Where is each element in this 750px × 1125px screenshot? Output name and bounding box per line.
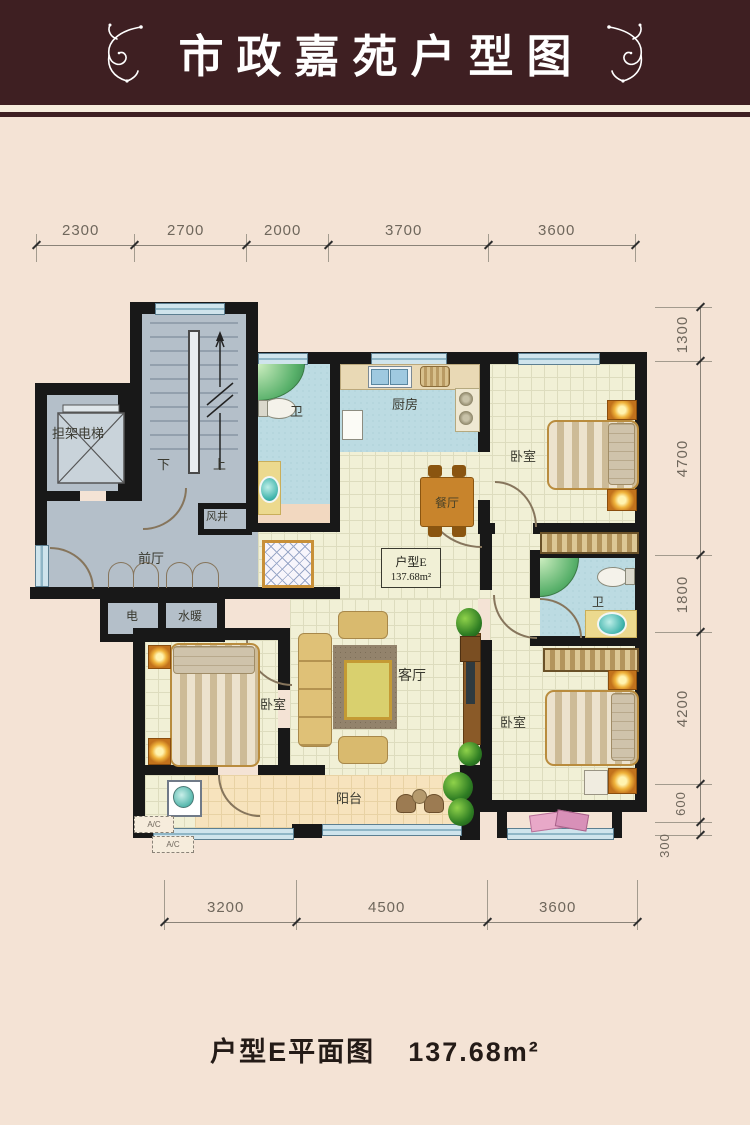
sofa (298, 633, 332, 747)
wall (35, 383, 142, 395)
room-label-plumbing: 水暖 (178, 610, 202, 622)
armchair (338, 611, 388, 639)
wall (198, 503, 204, 535)
wall (100, 595, 108, 642)
front-hall-window (35, 545, 49, 587)
flourish-right-icon (601, 21, 653, 85)
stool (584, 770, 608, 795)
ac-label: A/C (166, 840, 179, 849)
plan-caption: 户型E平面图 137.68m² (0, 1030, 750, 1069)
ac-label: A/C (147, 820, 160, 829)
bed-pillows (608, 423, 635, 485)
balcony-chair (424, 794, 444, 813)
dim-bottom-2: 4500 (368, 899, 405, 916)
bedroom-top-right-window (518, 353, 600, 365)
dim-right-4: 4200 (674, 690, 691, 727)
nightstand (607, 400, 637, 420)
burner (459, 392, 473, 406)
page: 市政嘉苑户型图 (0, 0, 750, 1125)
sink-basin (371, 369, 389, 385)
dimension-line (164, 922, 637, 923)
plant-pot (460, 636, 481, 662)
bed-pillows (611, 693, 635, 761)
room-label-electric: 电 (126, 610, 138, 622)
caption-area: 137.68m² (408, 1037, 540, 1067)
unit-name: 户型E (395, 553, 426, 570)
wall (158, 603, 166, 642)
stair-direction-arrow (205, 325, 235, 475)
wall (252, 523, 340, 532)
balcony-window-right (322, 824, 462, 836)
wardrobe (540, 532, 639, 554)
plumbing-door-arc (166, 562, 193, 588)
extension-line (655, 784, 712, 785)
ac-outdoor-unit: A/C (134, 816, 174, 833)
dim-right-1: 1300 (674, 316, 691, 353)
room-label-bedroom-bl: 卧室 (260, 698, 286, 711)
wall (497, 812, 507, 838)
toilet-tank (625, 568, 635, 585)
refrigerator (342, 410, 363, 440)
dim-top-5: 3600 (538, 222, 575, 239)
dim-top-3: 2000 (264, 222, 301, 239)
dim-bottom-1: 3200 (207, 899, 244, 916)
dining-label: 餐厅 (435, 494, 459, 511)
dim-top-4: 3700 (385, 222, 422, 239)
dim-right-3: 1800 (674, 576, 691, 613)
bed-pillows (173, 646, 255, 674)
wall (480, 640, 492, 812)
sink (597, 612, 627, 636)
room-label-bath-top: 卫 (290, 405, 303, 418)
extension-line (655, 632, 712, 633)
caption-title: 户型E平面图 (210, 1037, 375, 1067)
balcony-table (412, 789, 427, 804)
unit-area: 137.68m² (391, 572, 431, 583)
wall (198, 529, 252, 535)
unit-info-box: 户型E 137.68m² (381, 548, 441, 588)
dining-chair (428, 465, 442, 477)
dimension-line (700, 307, 701, 835)
nightstand (148, 645, 171, 669)
room-label-bedroom-tr: 卧室 (510, 450, 536, 463)
coffee-table (344, 660, 392, 720)
room-label-stairs-up: 上 (213, 458, 226, 471)
extension-line (36, 234, 37, 262)
elevator-symbol (55, 403, 127, 487)
wall (530, 550, 540, 598)
wall (217, 595, 225, 642)
extension-line (655, 555, 712, 556)
extension-line (635, 234, 636, 262)
extension-line (328, 234, 329, 262)
toilet-tank (258, 400, 268, 417)
room-label-elevator: 担架电梯 (52, 427, 104, 440)
dim-right-2: 4700 (674, 440, 691, 477)
room-label-kitchen: 厨房 (392, 398, 418, 411)
dim-top-1: 2300 (62, 222, 99, 239)
bay-window (507, 828, 614, 840)
header-banner: 市政嘉苑户型图 (0, 0, 750, 105)
wall (292, 824, 322, 838)
wall (106, 491, 142, 501)
dim-top-2: 2700 (167, 222, 204, 239)
wall (330, 364, 340, 530)
dim-right-5: 600 (673, 791, 688, 816)
cutting-board (420, 366, 450, 387)
extension-line (655, 822, 712, 823)
nightstand (608, 768, 637, 794)
plant (448, 798, 474, 826)
dining-table: 餐厅 (420, 477, 474, 527)
sink-basin (390, 369, 408, 385)
stairwell-window (155, 303, 225, 315)
extension-line (134, 234, 135, 262)
dim-right-6: 300 (657, 833, 672, 858)
ac-outdoor-unit: A/C (152, 836, 194, 853)
page-title: 市政嘉苑户型图 (165, 20, 584, 85)
extension-line (655, 361, 712, 362)
room-label-bath-mid: 卫 (592, 596, 604, 608)
wall (246, 302, 258, 530)
burner (459, 411, 473, 425)
dimension-line (36, 245, 635, 246)
header-divider-light (0, 105, 750, 112)
plumbing-door-arc (192, 562, 219, 588)
nightstand (608, 670, 637, 690)
plant (458, 742, 482, 766)
extension-line (655, 307, 712, 308)
washer-drum (173, 786, 194, 808)
wall (198, 503, 252, 509)
room-label-bedroom-br: 卧室 (500, 716, 526, 729)
entry-mat (262, 540, 314, 588)
stair-rail (188, 330, 200, 474)
room-label-stairs-down: 下 (157, 458, 170, 471)
room-label-air-shaft: 风井 (206, 512, 228, 523)
armchair (338, 736, 388, 764)
room-label-balcony: 阳台 (336, 792, 362, 805)
wardrobe (543, 648, 639, 672)
sink (259, 476, 280, 503)
wall (130, 302, 142, 395)
room-label-front-hall: 前厅 (138, 552, 164, 565)
extension-line (488, 234, 489, 262)
electric-door-arc (108, 562, 134, 588)
wall (47, 491, 80, 501)
wall (258, 765, 325, 775)
header-divider-dark (0, 112, 750, 117)
dining-chair (452, 465, 466, 477)
room-label-living: 客厅 (398, 670, 426, 684)
dim-bottom-3: 3600 (539, 899, 576, 916)
plant (456, 608, 482, 638)
flourish-left-icon (97, 21, 149, 85)
nightstand (148, 738, 171, 765)
extension-line (246, 234, 247, 262)
nightstand (607, 489, 637, 511)
wall (133, 628, 145, 835)
wall (100, 595, 225, 603)
